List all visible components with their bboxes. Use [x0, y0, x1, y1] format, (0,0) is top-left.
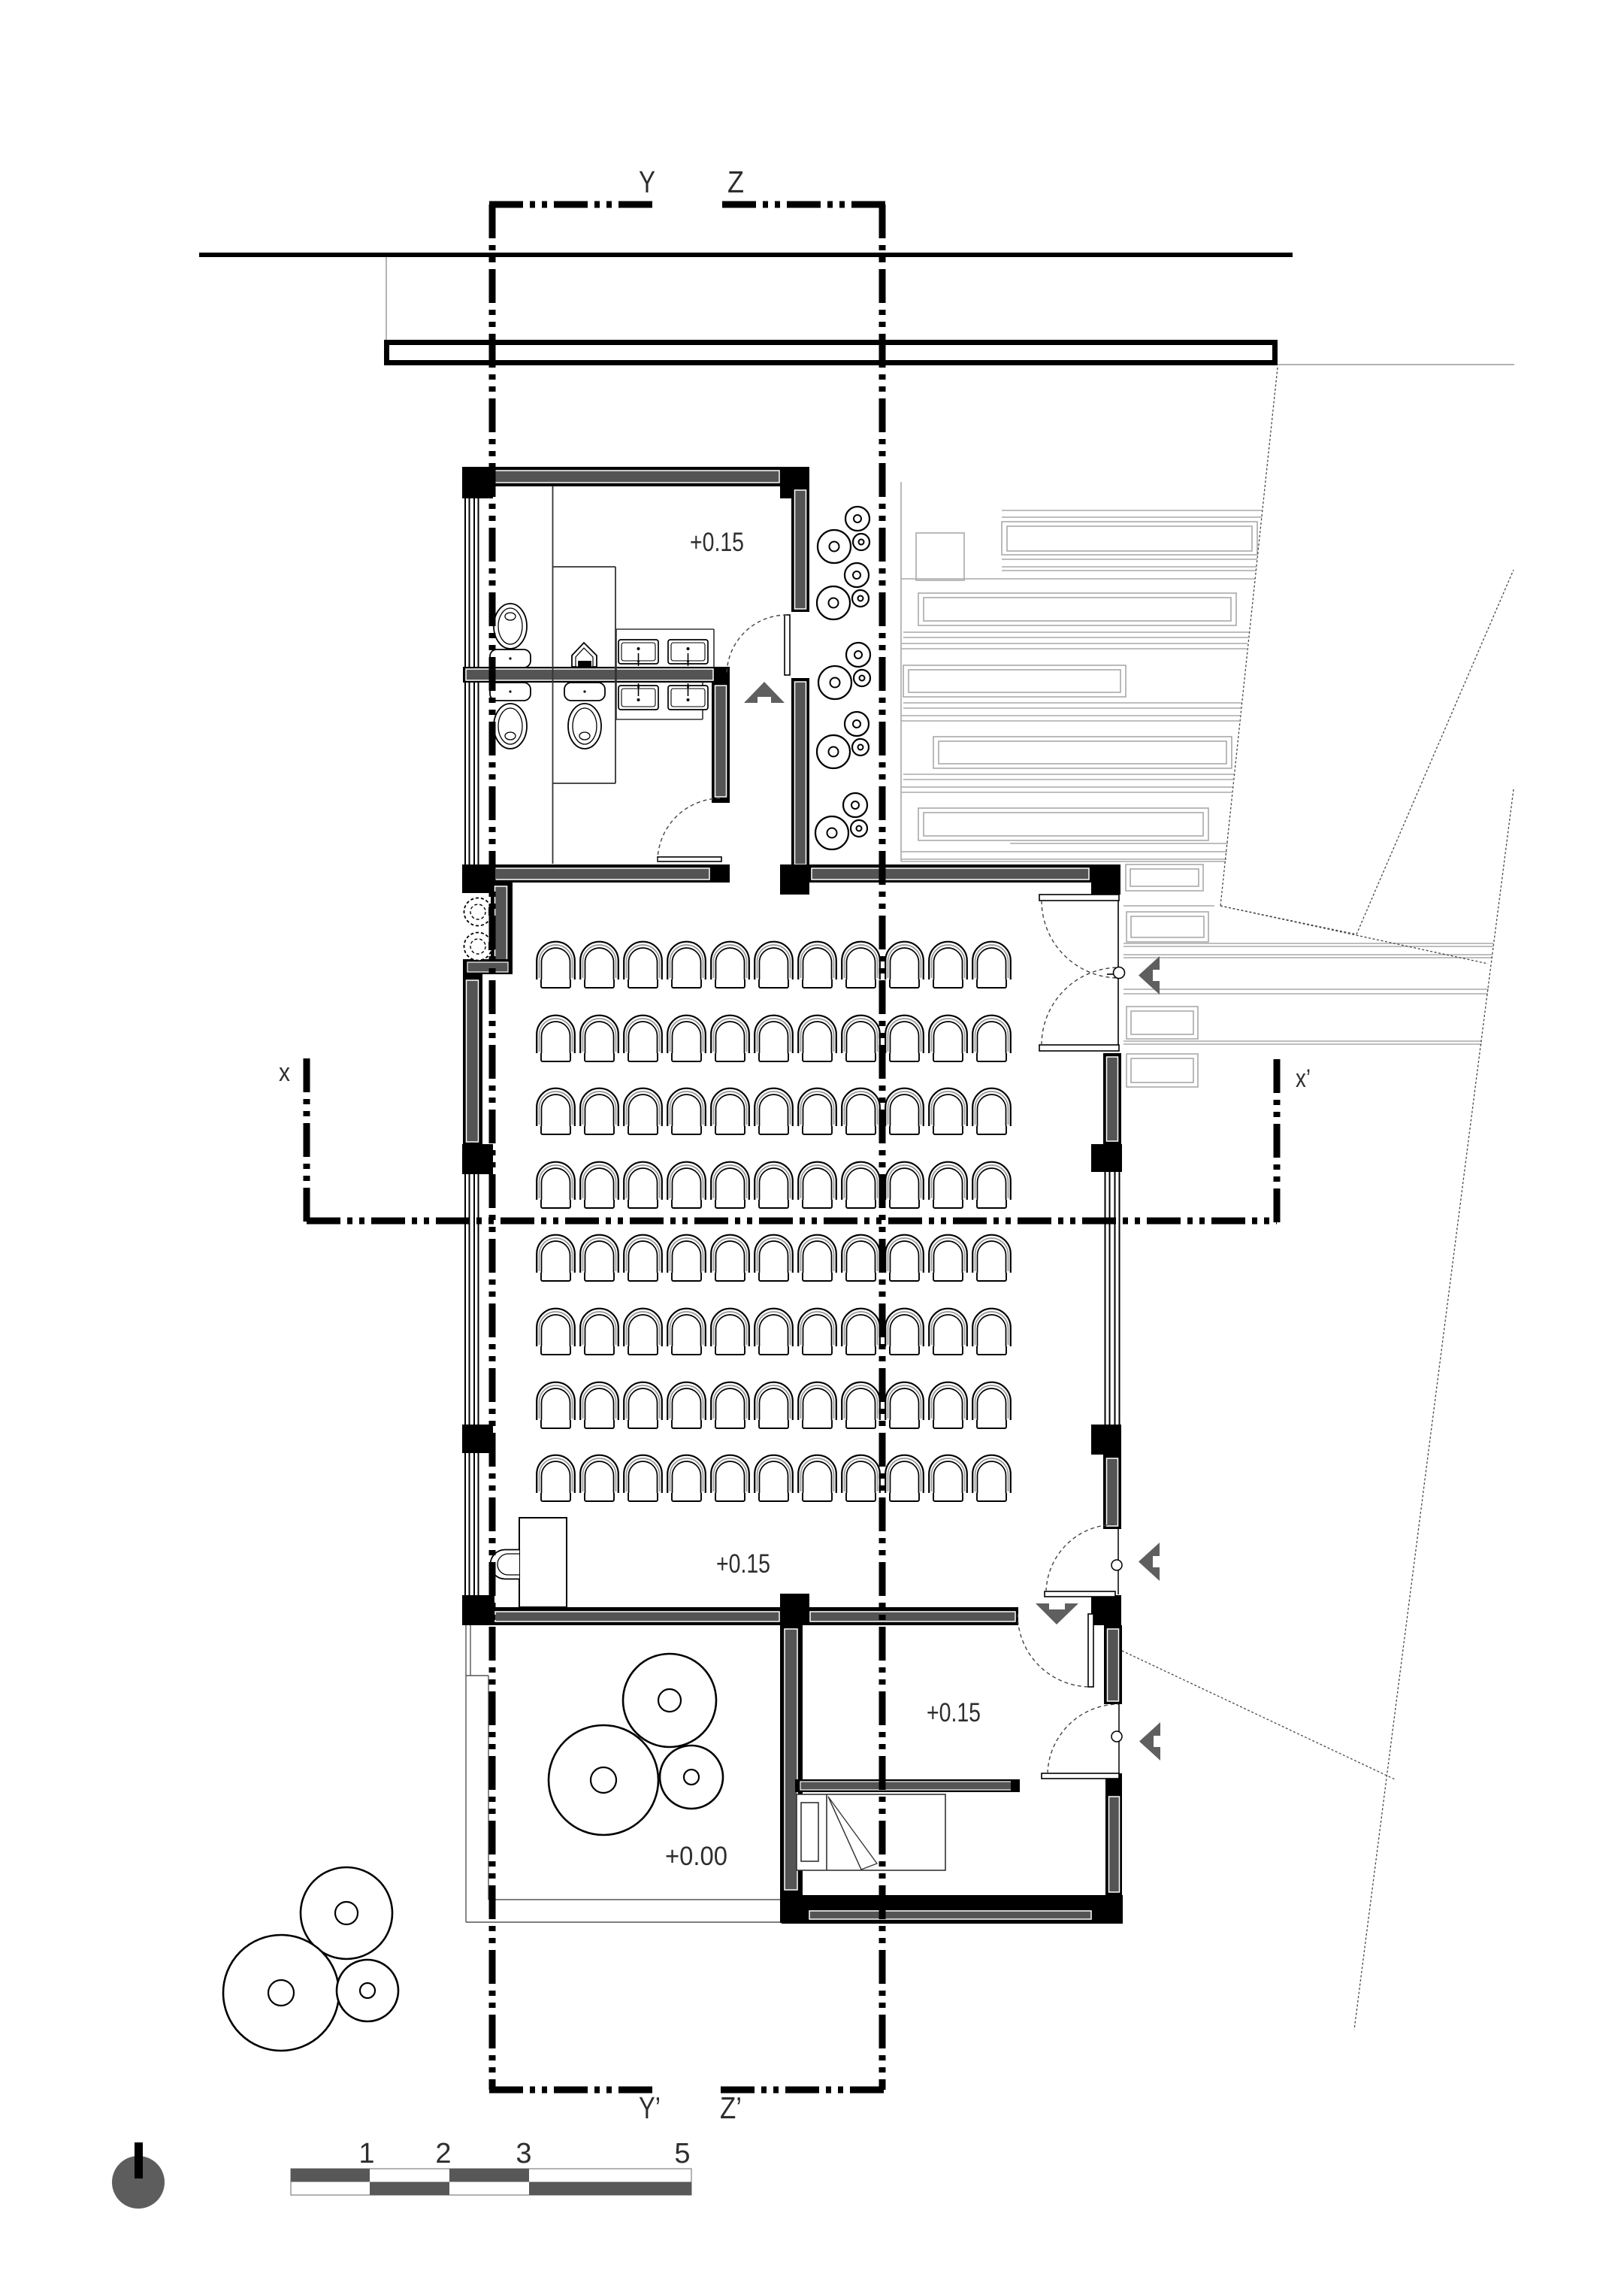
svg-text:Z: Z	[727, 165, 744, 199]
svg-text:+0.00: +0.00	[665, 1842, 727, 1871]
svg-text:x’: x’	[1296, 1064, 1311, 1093]
svg-text:+0.15: +0.15	[690, 528, 744, 557]
svg-text:+0.15: +0.15	[927, 1698, 981, 1727]
svg-text:2: 2	[435, 2138, 451, 2169]
svg-text:+0.15: +0.15	[716, 1549, 770, 1579]
svg-text:1: 1	[358, 2138, 374, 2169]
svg-text:5: 5	[674, 2138, 690, 2169]
svg-text:3: 3	[516, 2138, 531, 2169]
svg-text:Y: Y	[639, 165, 655, 199]
svg-text:Z’: Z’	[720, 2091, 742, 2125]
svg-text:Y’: Y’	[639, 2091, 661, 2125]
svg-text:x: x	[279, 1058, 290, 1087]
